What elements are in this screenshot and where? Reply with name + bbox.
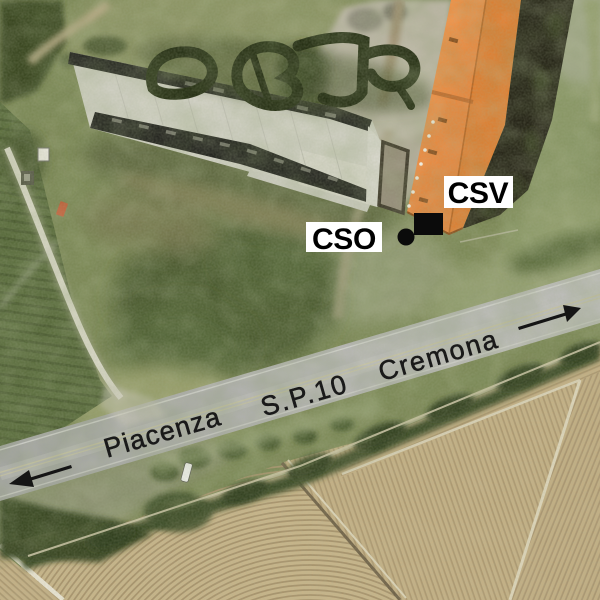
svg-text:CSO: CSO bbox=[312, 223, 376, 256]
svg-text:CSV: CSV bbox=[448, 177, 509, 210]
